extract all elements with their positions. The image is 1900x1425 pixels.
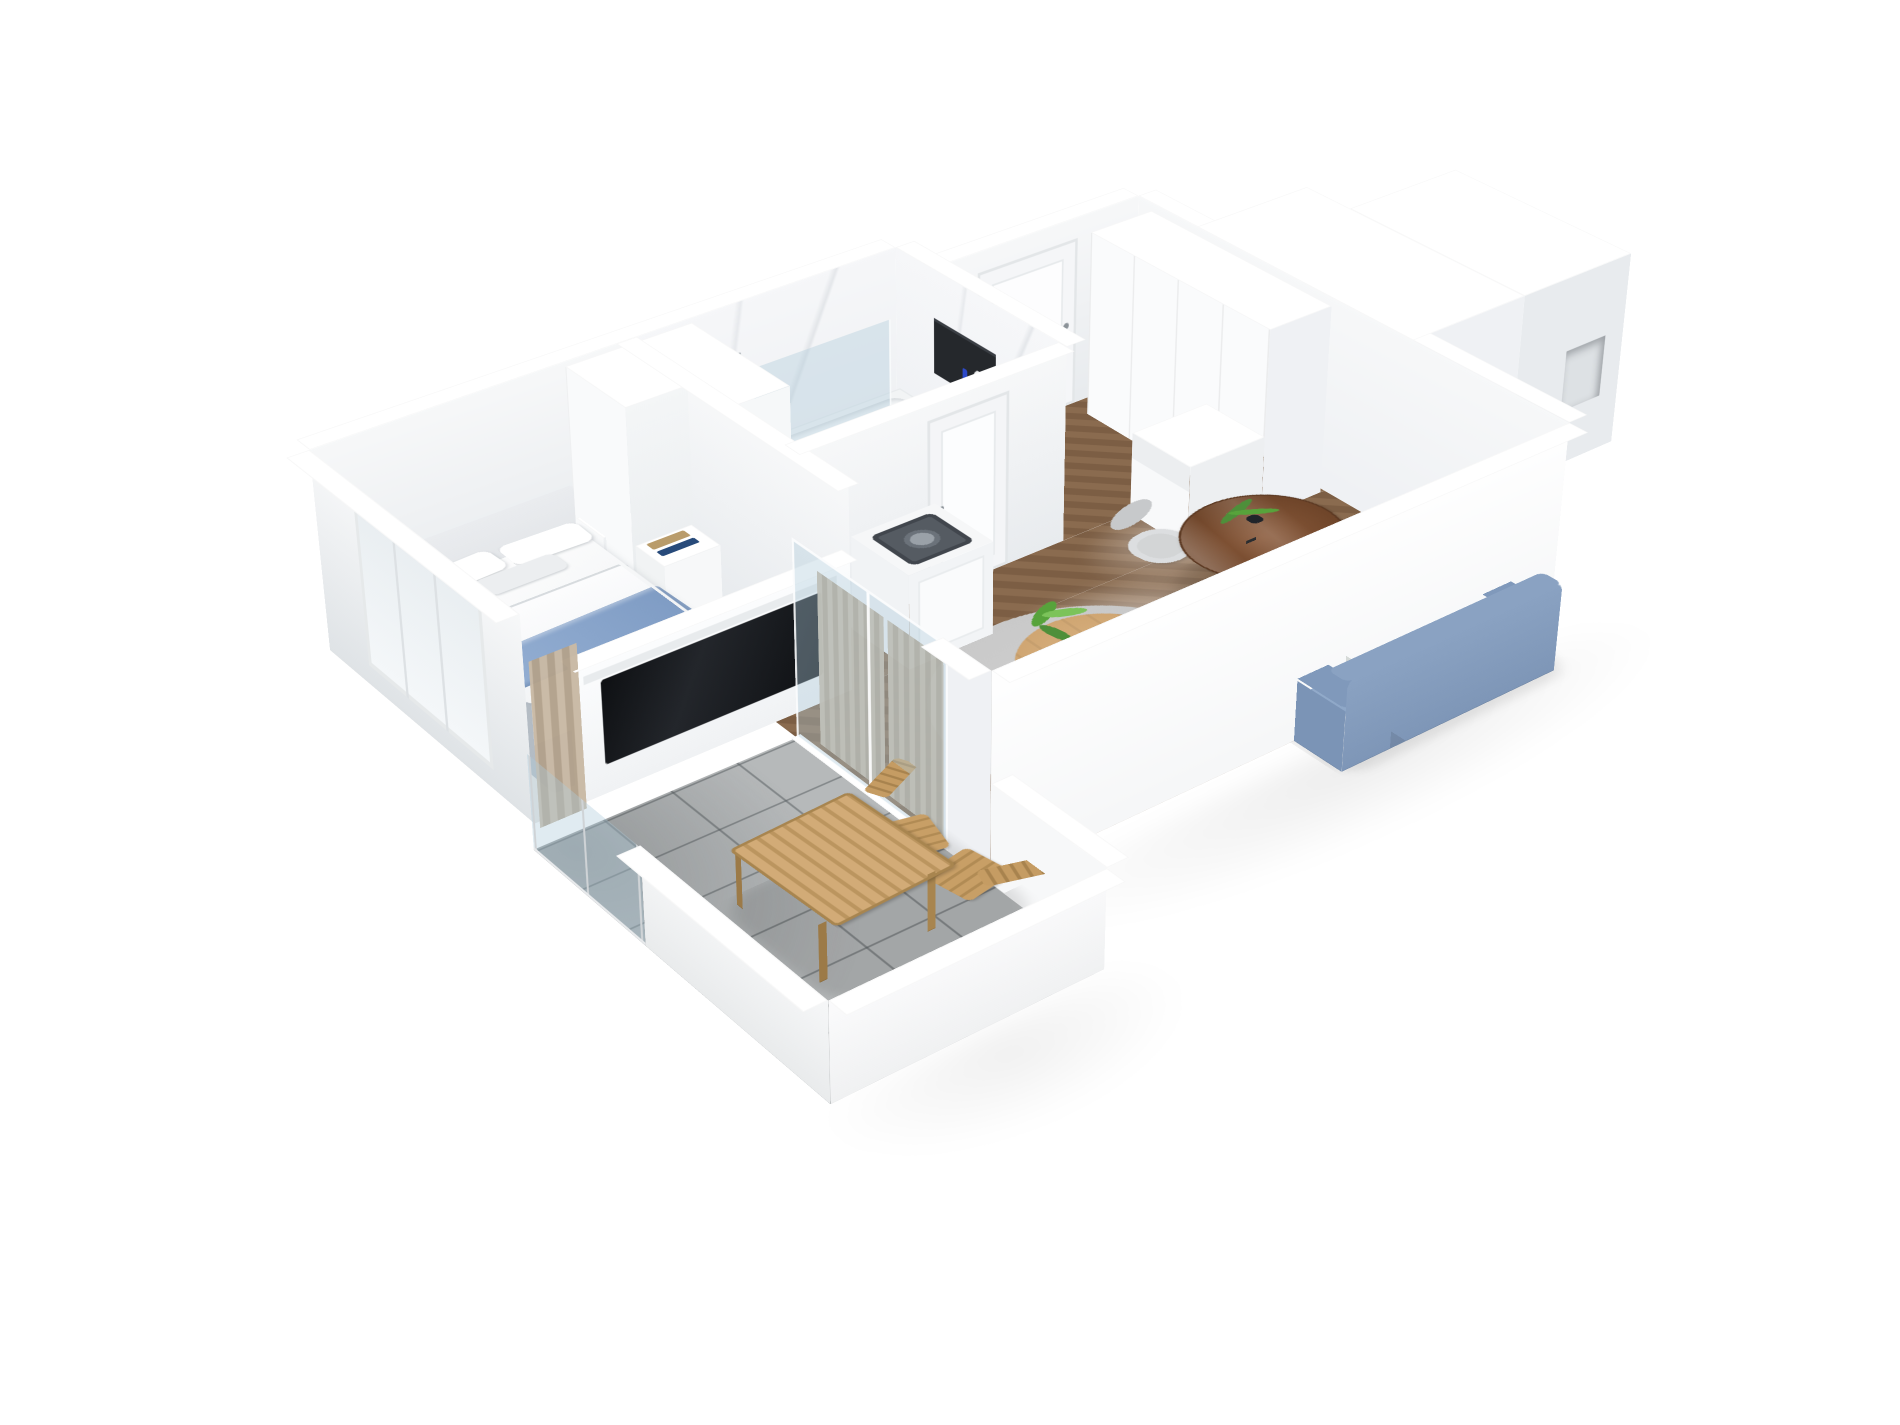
balcony-table-leg-2 xyxy=(818,921,828,983)
railing-post-2 xyxy=(581,799,589,895)
nook-recess xyxy=(1561,335,1606,412)
railing-post-1 xyxy=(528,755,537,850)
glass-door-divider xyxy=(866,592,872,791)
floorplan-render xyxy=(0,0,1900,1425)
balcony-table-leg-1 xyxy=(927,871,935,932)
